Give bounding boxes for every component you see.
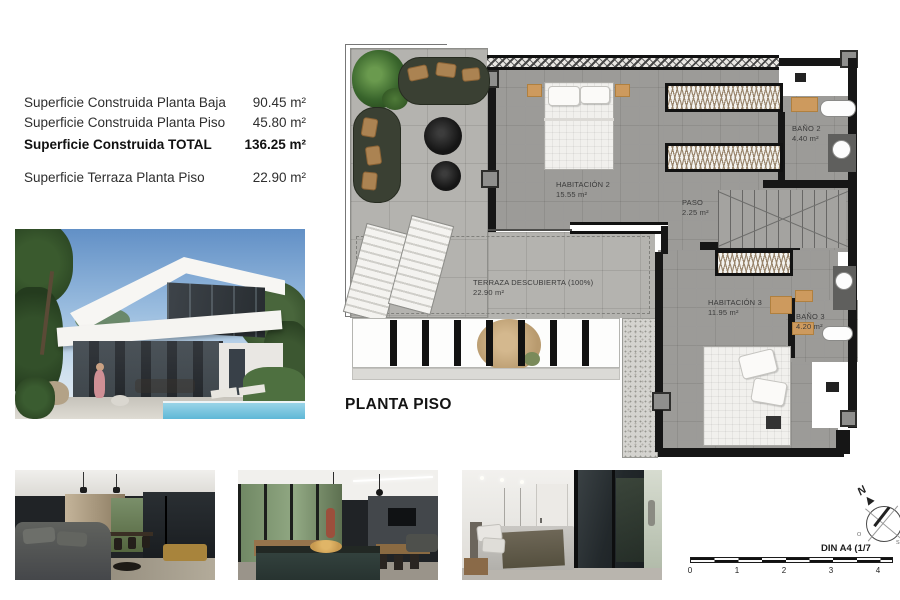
dimension-line (345, 44, 346, 317)
pendant-lamp (376, 489, 383, 496)
pendant-cord (379, 474, 380, 490)
room-label-paso: PASO 2.25 m² (682, 198, 709, 218)
sheet-scale-label: DIN A4 (1/7 (821, 543, 900, 554)
sliding-door (570, 222, 668, 234)
pergola-beam (518, 320, 525, 366)
outdoor-dining (135, 379, 195, 393)
stool (766, 416, 781, 429)
room-name: TERRAZA DESCUBIERTA (100%) (473, 278, 593, 288)
plan-sheet: Superficie Construida Planta Baja 90.45 … (0, 0, 900, 600)
spotlight (500, 478, 504, 482)
plan-title: PLANTA PISO (345, 396, 452, 414)
wall-step (836, 430, 850, 454)
interior-thumbnail-living (15, 470, 215, 580)
mullion (612, 470, 615, 580)
figure (648, 500, 655, 526)
spec-label: Superficie Construida TOTAL (24, 137, 212, 152)
figure-dress (94, 370, 105, 398)
sofa (406, 534, 438, 552)
pergola-beam (582, 320, 589, 366)
room-name: HABITACIÓN 3 (708, 298, 762, 308)
pillar (652, 392, 671, 411)
wall-segment (661, 226, 668, 254)
pillow (580, 86, 610, 104)
room-label-habitacion2: HABITACIÓN 2 15.55 m² (556, 180, 610, 200)
scale-bar-row (691, 560, 892, 562)
chair (128, 537, 136, 549)
wall-segment (488, 188, 496, 232)
pool (163, 401, 305, 419)
spec-value: 45.80 m² (253, 115, 306, 130)
wardrobe (665, 143, 783, 172)
room-name: PASO (682, 198, 709, 208)
pillow (548, 86, 580, 106)
spotlight (480, 476, 484, 480)
scale-tick: 3 (829, 566, 833, 575)
room-name: BAÑO 3 (796, 312, 825, 322)
nightstand (464, 558, 488, 575)
exterior-hatched-wall (487, 55, 779, 70)
chair (142, 536, 150, 548)
room-name: BAÑO 2 (792, 124, 821, 134)
bathtub (820, 100, 856, 117)
dimension-line (345, 44, 447, 45)
north-compass-icon: N E S O (856, 488, 900, 550)
pendant-lamp (80, 487, 87, 493)
figure (326, 508, 335, 538)
cushion (361, 171, 378, 190)
room-area: 22.90 m² (473, 288, 593, 298)
pouf (111, 395, 129, 406)
chair (394, 555, 403, 570)
pillar (481, 170, 499, 188)
sink (832, 140, 851, 159)
pergola-beam (454, 320, 461, 366)
cushion (22, 527, 55, 545)
room-label-bano3: BAÑO 3 4.20 m² (796, 312, 825, 332)
room-area: 4.20 m² (796, 322, 825, 332)
scale-tick: 4 (876, 566, 880, 575)
desk (770, 296, 792, 314)
scale-tick: 1 (735, 566, 739, 575)
tv (388, 508, 416, 526)
interior-thumbnail-kitchen (238, 470, 438, 580)
window-line (488, 229, 572, 231)
sink (835, 272, 853, 290)
room-area: 15.55 m² (556, 190, 610, 200)
room-label-terraza: TERRAZA DESCUBIERTA (100%) 22.90 m² (473, 278, 593, 298)
spec-row: Superficie Construida Planta Piso 45.80 … (24, 115, 306, 130)
room-label-habitacion3: HABITACIÓN 3 11.95 m² (708, 298, 762, 318)
scale-bar (690, 557, 893, 563)
room-area: 11.95 m² (708, 308, 762, 318)
spec-row: Superficie Terraza Planta Piso 22.90 m² (24, 170, 306, 185)
pillow (482, 537, 506, 554)
cushion (365, 145, 382, 166)
bath-mat (795, 290, 813, 302)
fixture-dark (826, 382, 839, 392)
chair (410, 554, 419, 569)
spec-value: 136.25 m² (244, 137, 306, 152)
gravel-strip (622, 318, 658, 458)
door-handle (540, 518, 542, 523)
coffee-table (113, 562, 141, 571)
spec-value: 90.45 m² (253, 95, 306, 110)
wardrobe (665, 83, 783, 112)
blanket (501, 529, 565, 568)
pergola-beam (550, 320, 557, 366)
nightstand (527, 84, 542, 97)
plants (15, 377, 55, 419)
plant (524, 352, 540, 366)
garden-reflection (616, 478, 644, 562)
pergola-shadow-band (352, 368, 620, 380)
room-name: HABITACIÓN 2 (556, 180, 610, 190)
pergola-beam (390, 320, 397, 366)
pendant-cord (83, 472, 84, 488)
scale-tick: 0 (688, 566, 692, 575)
cushion (57, 531, 88, 547)
compass-west-label: O (857, 532, 861, 538)
toilet (822, 326, 853, 341)
wall-segment (655, 252, 663, 392)
spotlight (520, 480, 524, 484)
chair (114, 538, 122, 550)
pendant-lamp (113, 487, 120, 493)
bath-mat (791, 97, 818, 112)
accent-sofa (163, 544, 207, 561)
wall-segment (763, 180, 855, 188)
room-label-bano2: BAÑO 2 4.40 m² (792, 124, 821, 144)
room-area: 4.40 m² (792, 134, 821, 144)
pergola-beam (486, 320, 493, 366)
cushion (461, 67, 480, 82)
spec-value: 22.90 m² (253, 170, 306, 185)
spec-label: Superficie Terraza Planta Piso (24, 170, 205, 185)
round-table (431, 161, 461, 191)
wall-segment (488, 88, 496, 170)
blanket-fold (544, 118, 614, 121)
cushion (435, 62, 457, 79)
round-table (424, 117, 462, 155)
pillar (840, 410, 857, 427)
spec-row-total: Superficie Construida TOTAL 136.25 m² (24, 137, 306, 152)
room-area: 2.25 m² (682, 208, 709, 218)
spec-label: Superficie Construida Planta Piso (24, 115, 225, 130)
spec-label: Superficie Construida Planta Baja (24, 95, 226, 110)
pergola-beam (422, 320, 429, 366)
fixture-dark (795, 73, 806, 82)
wall-segment (658, 448, 844, 457)
pendant-cord (116, 474, 117, 488)
wardrobe (715, 250, 793, 276)
wall-segment (655, 410, 663, 452)
void-area (779, 66, 849, 96)
villa-exterior-photo (15, 229, 305, 419)
fruit-bowl (310, 540, 342, 553)
interior-thumbnail-bedroom (462, 470, 662, 580)
spec-row: Superficie Construida Planta Baja 90.45 … (24, 95, 306, 110)
scale-tick: 2 (782, 566, 786, 575)
nightstand (615, 84, 630, 97)
